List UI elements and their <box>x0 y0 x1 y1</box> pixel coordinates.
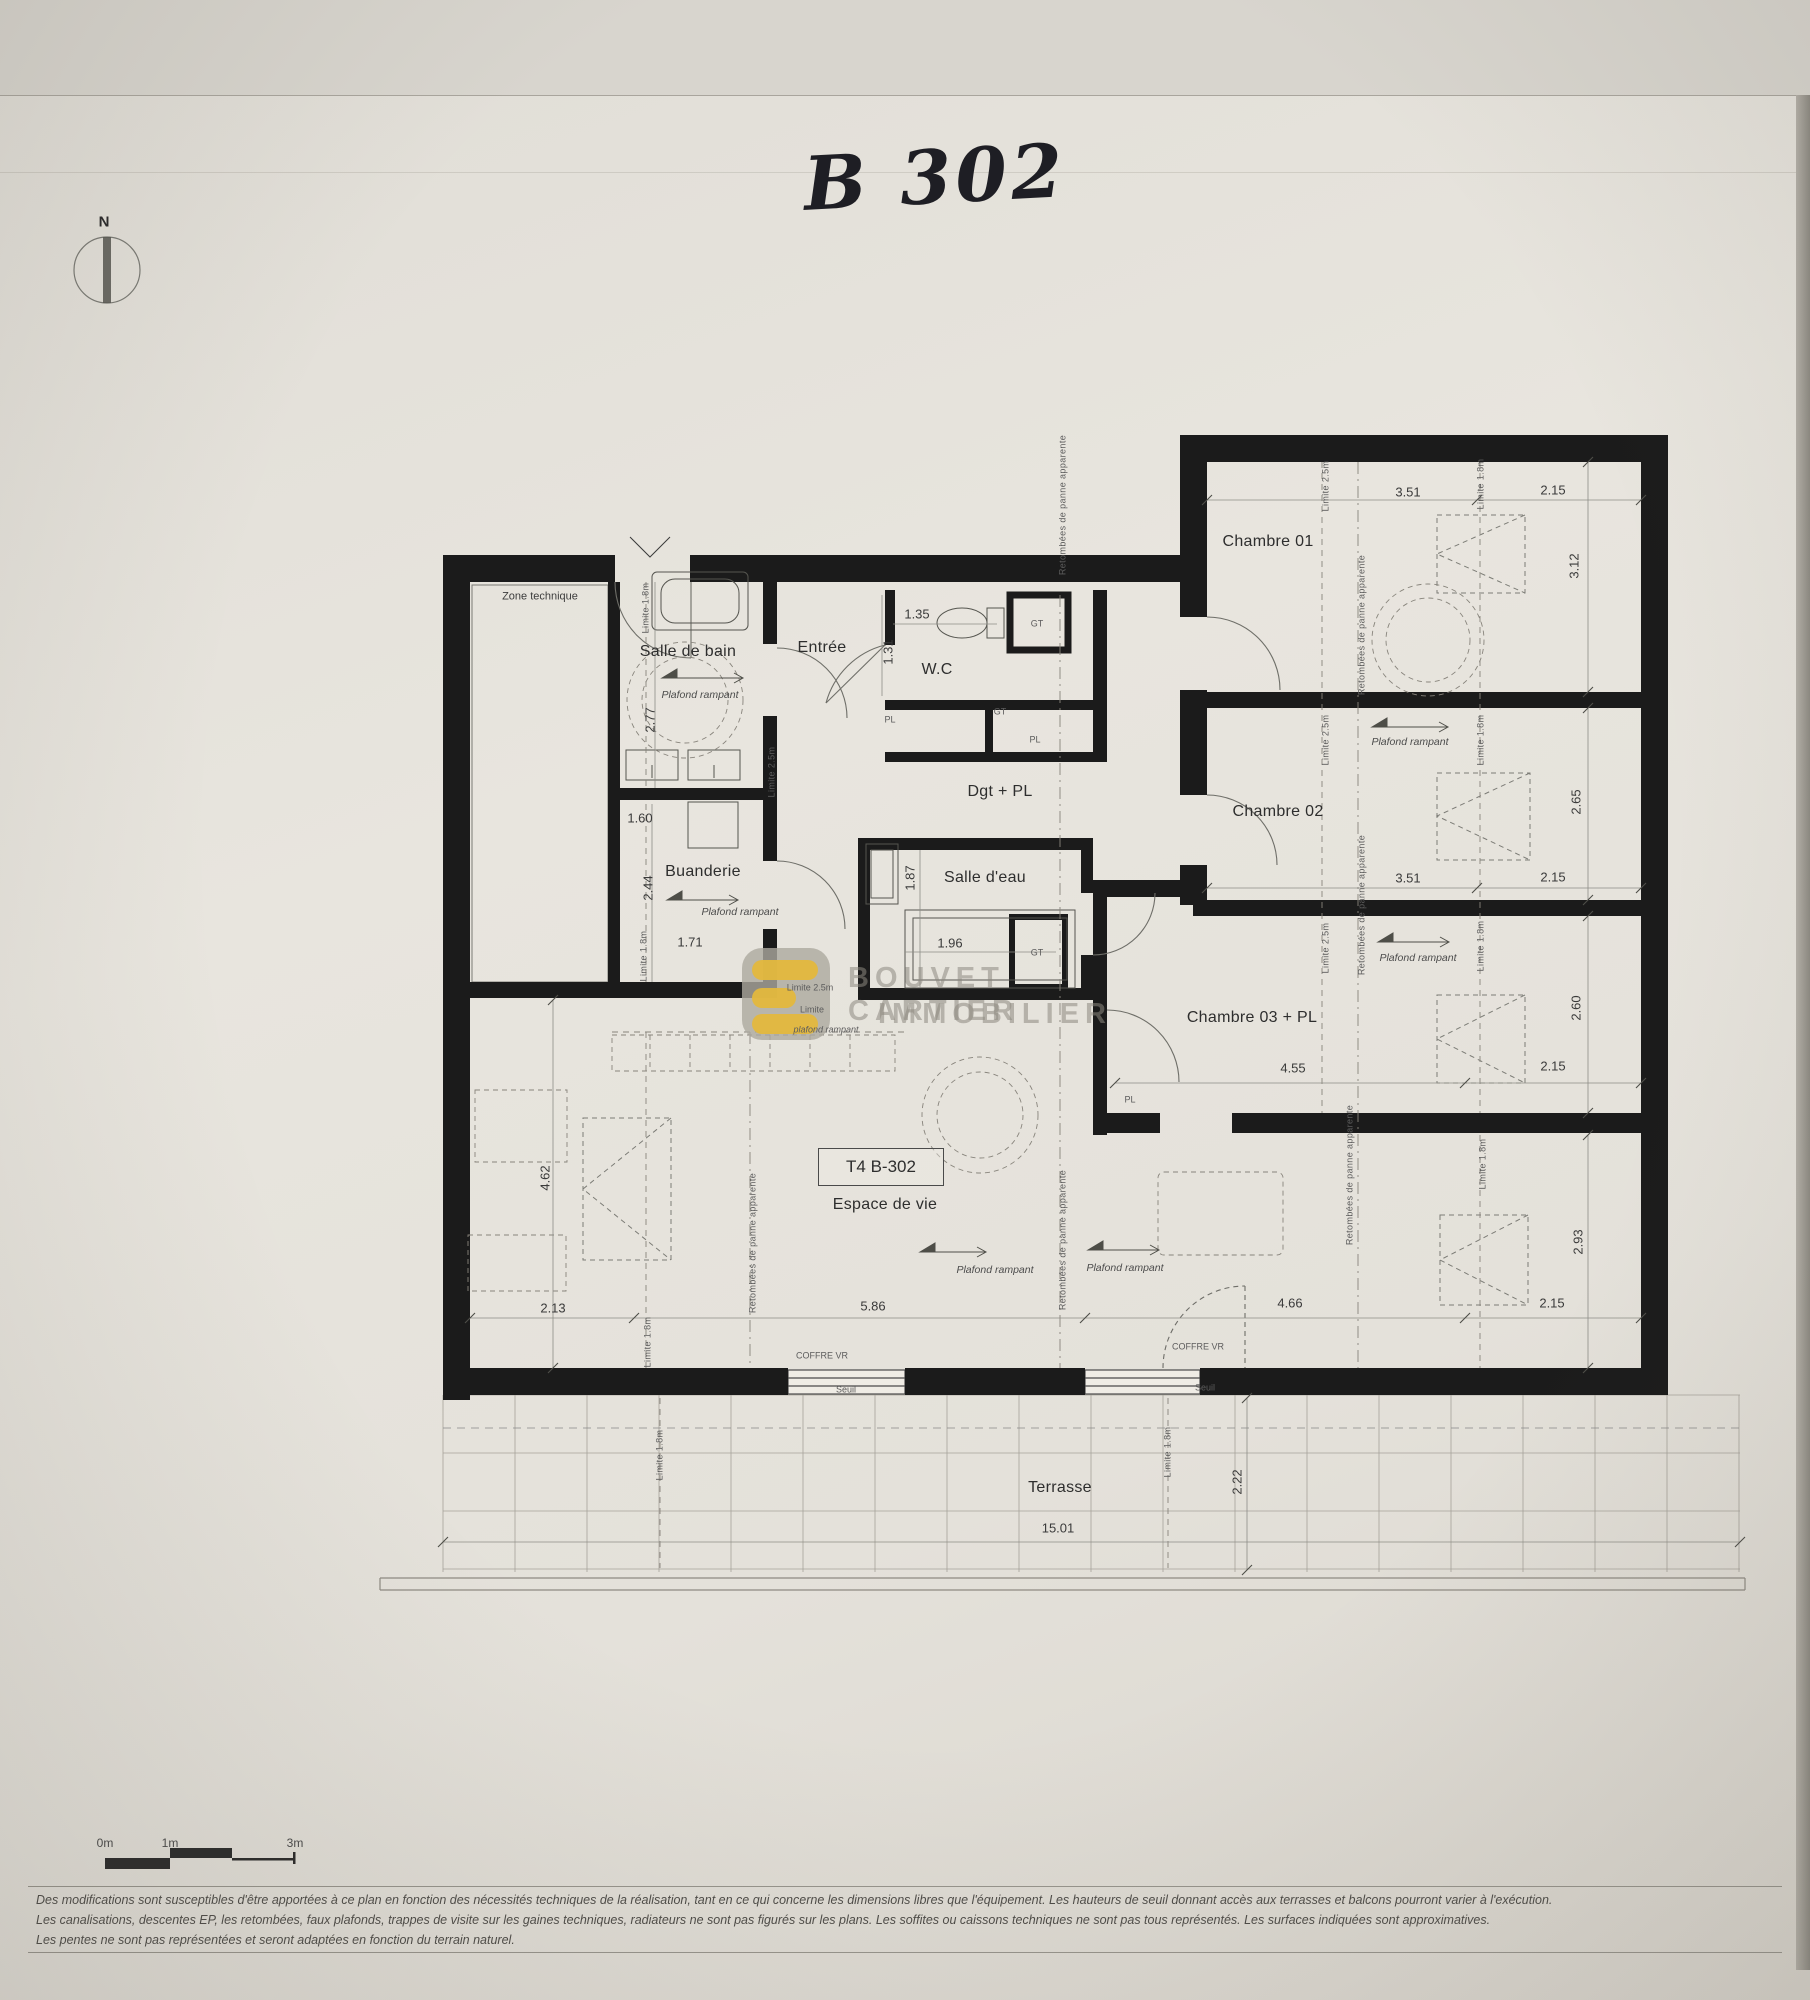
dimension-label: 1.31 <box>882 639 895 664</box>
dimension-label: 4.55 <box>1280 1062 1305 1075</box>
dimension-label: 3.12 <box>1568 553 1581 578</box>
dimension-label: 1.96 <box>937 937 962 950</box>
dimension-label: 2.13 <box>540 1302 565 1315</box>
dimension-label: 5.86 <box>860 1300 885 1313</box>
dimension-label: 4.62 <box>539 1165 552 1190</box>
annotation-label: Retombées de panne apparente <box>1059 1170 1068 1310</box>
annotation-label: Limite 1.8m <box>1477 459 1486 510</box>
scale-zero-label: 0m <box>97 1836 114 1850</box>
handwritten-unit-number: B 302 <box>802 128 1069 228</box>
dimension-label: 1.87 <box>904 865 917 890</box>
floor-plan-page: BOUVET CARTIER IMMOBILIER Zone technique… <box>0 0 1810 2000</box>
annotation-label: Limite 1.8m <box>1477 921 1486 972</box>
annotation-label: COFFRE VR <box>1172 1343 1224 1352</box>
annotation-label: Limite 2.5m <box>1322 715 1331 766</box>
disclaimer-line-2: Les canalisations, descentes EP, les ret… <box>28 1910 1782 1930</box>
dimension-label: 2.15 <box>1540 871 1565 884</box>
annotation-label: PL <box>1124 1096 1135 1105</box>
room-label: Zone technique <box>502 592 578 603</box>
annotation-label: GT <box>1031 949 1044 958</box>
dimension-label: 2.60 <box>1570 995 1583 1020</box>
room-label: Chambre 02 <box>1232 804 1323 820</box>
annotation-label: Limite 2.5m <box>1322 461 1331 512</box>
dashed-guides <box>468 462 1484 1568</box>
photo-right-edge <box>1796 95 1810 1970</box>
annotation-label: PL <box>1029 736 1040 745</box>
compass-north-label: N <box>99 214 110 231</box>
room-label: Buanderie <box>665 864 741 880</box>
north-compass <box>74 237 140 303</box>
room-label: Salle de bain <box>640 644 736 660</box>
dimension-label: 1.60 <box>627 812 652 825</box>
annotation-label: GT <box>994 708 1007 717</box>
dimension-label: 2.15 <box>1539 1297 1564 1310</box>
dimension-label: 4.66 <box>1277 1297 1302 1310</box>
annotation-label: Retombées de panne apparente <box>749 1173 758 1313</box>
room-label: W.C <box>921 662 952 678</box>
annotation-label: Limite 1.8m <box>656 1430 665 1481</box>
annotation-label: Retombées de panne apparente <box>1358 555 1367 695</box>
disclaimer-line-3: Les pentes ne sont pas représentées et s… <box>28 1930 1782 1950</box>
annotation-label: Retombées de panne apparente <box>1346 1105 1355 1245</box>
annotation-label: Plafond rampant <box>1086 1263 1163 1274</box>
room-label: Chambre 01 <box>1222 534 1313 550</box>
annotation-label: Plafond rampant <box>956 1265 1033 1276</box>
dimension-label: 2.15 <box>1540 484 1565 497</box>
annotation-label: COFFRE VR <box>796 1352 848 1361</box>
annotation-label: Limite 1.8m <box>640 931 649 982</box>
floor-plan-drawing <box>0 0 1810 2000</box>
scale-three-label: 3m <box>287 1836 304 1850</box>
room-label: Salle d'eau <box>944 870 1026 886</box>
unit-designation-label: T4 B-302 <box>846 1157 916 1177</box>
annotation-label: Limite <box>800 1006 824 1015</box>
scale-bar-graphic <box>105 1848 296 1869</box>
annotation-label: Limite 1.8m <box>1479 1139 1488 1190</box>
annotation-label: Limite 1.8m <box>1164 1427 1173 1478</box>
dimension-ticks <box>438 457 1745 1575</box>
dimension-label: 2.65 <box>1570 789 1583 814</box>
room-label: Espace de vie <box>833 1197 937 1213</box>
annotation-label: GT <box>1031 620 1044 629</box>
room-label: Chambre 03 + PL <box>1187 1010 1317 1026</box>
dimension-label: 3.51 <box>1395 486 1420 499</box>
annotation-label: Plafond rampant <box>1371 737 1448 748</box>
annotation-label: Retombées de panne apparente <box>1358 835 1367 975</box>
annotation-label: PL <box>884 716 895 725</box>
room-label: Dgt + PL <box>967 784 1032 800</box>
dimension-label: 2.44 <box>642 875 655 900</box>
annotation-label: Limite 1.8m <box>644 1317 653 1368</box>
annotation-label: Seuil <box>836 1386 856 1395</box>
dimension-lines <box>438 457 1745 1575</box>
dimension-label: 1.71 <box>677 936 702 949</box>
dimension-label: 2.93 <box>1572 1229 1585 1254</box>
annotation-label: Limite 1.8m <box>1477 715 1486 766</box>
dimension-label: 15.01 <box>1042 1522 1075 1535</box>
annotation-label: Plafond rampant <box>701 907 778 918</box>
annotation-label: Limite 1.8m <box>642 583 651 634</box>
annotation-label: Plafond rampant <box>1379 953 1456 964</box>
scale-one-label: 1m <box>162 1836 179 1850</box>
annotation-label: plafond rampant <box>793 1026 858 1035</box>
room-label: Entrée <box>798 640 847 656</box>
room-label: Terrasse <box>1028 1480 1092 1496</box>
annotation-label: Retombées de panne apparente <box>1059 435 1068 575</box>
unit-designation-box: T4 B-302 <box>818 1148 944 1186</box>
annotation-label: Limite 2.5m <box>1322 923 1331 974</box>
annotation-label: Seuil <box>1195 1384 1215 1393</box>
dimension-label: 3.51 <box>1395 872 1420 885</box>
annotation-label: Plafond rampant <box>661 690 738 701</box>
annotation-label: Limite 2.5m <box>787 984 834 993</box>
dimension-label: 2.22 <box>1231 1469 1244 1494</box>
disclaimer-line-1: Des modifications sont susceptibles d'êt… <box>28 1890 1782 1910</box>
dimension-label: 2.15 <box>1540 1060 1565 1073</box>
dimension-label: 2.77 <box>644 707 657 732</box>
dimension-label: 1.35 <box>904 608 929 621</box>
annotation-label: Limite 2.5m <box>768 747 777 798</box>
disclaimer-box: Des modifications sont susceptibles d'êt… <box>28 1886 1782 1953</box>
